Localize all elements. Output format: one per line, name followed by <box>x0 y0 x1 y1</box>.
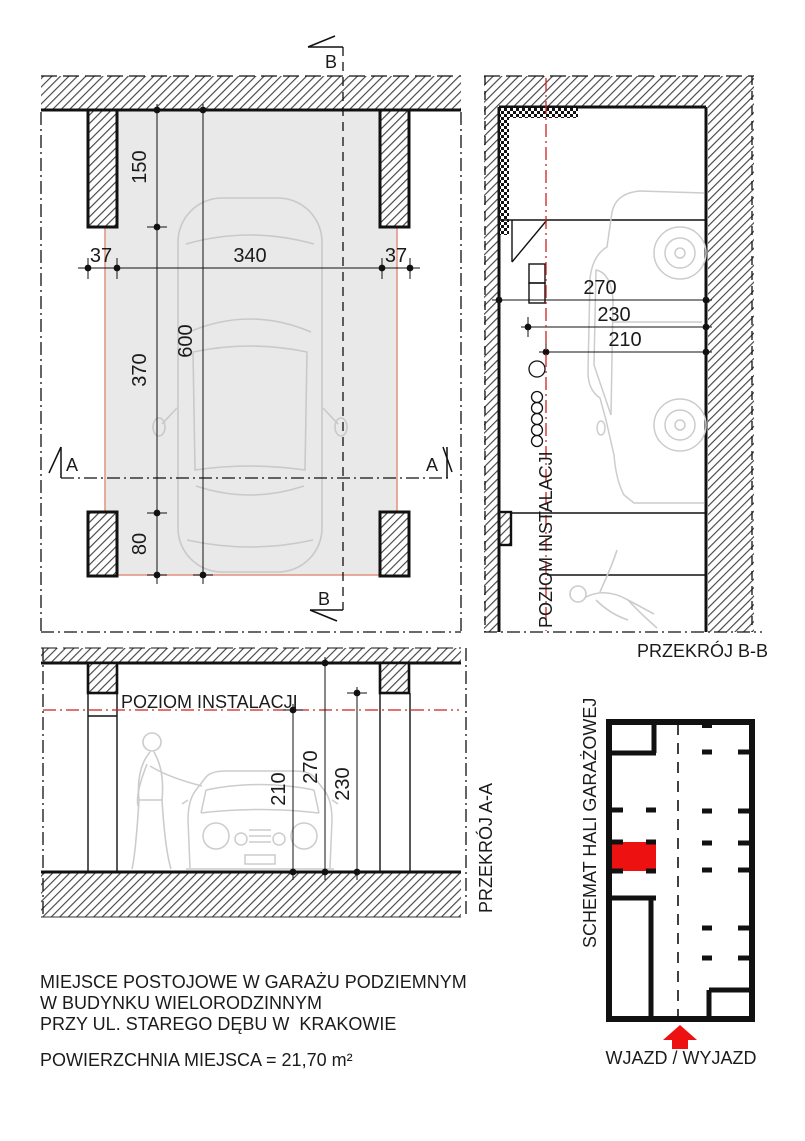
section-marker-b-bottom: B <box>318 589 330 609</box>
section-aa-view: POZIOM INSTALACJI 210 270 230 PRZEKRÓJ A… <box>41 648 496 917</box>
bb-wall-faces <box>499 107 706 632</box>
title-notes: MIEJSCE POSTOJOWE W GARAŻU PODZIEMNYM W … <box>40 972 467 1070</box>
note-line-3: PRZY UL. STAREGO DĘBU W KRAKOWIE <box>40 1014 396 1034</box>
section-marker-b-top: B <box>325 52 337 72</box>
architectural-drawing-sheet: B B A A <box>0 0 805 1141</box>
dim-600: 600 <box>175 324 197 357</box>
dim-80: 80 <box>129 533 151 555</box>
section-marker-a-left: A <box>66 455 78 475</box>
bb-pipes <box>529 361 545 447</box>
car-side-view <box>588 191 706 503</box>
plan-wall-band <box>41 76 461 110</box>
bb-insulation-top <box>500 108 578 118</box>
note-line-1: MIEJSCE POSTOJOWE W GARAŻU PODZIEMNYM <box>40 972 467 992</box>
section-marker-a-right: A <box>426 455 438 475</box>
bb-dim-210: 210 <box>608 329 641 351</box>
car-front-view <box>182 771 338 869</box>
bb-dim-270: 270 <box>583 277 616 299</box>
bb-right-wall <box>708 76 754 632</box>
entry-arrow <box>663 1025 697 1049</box>
section-bb-title: PRZEKRÓJ B-B <box>637 640 768 661</box>
bb-dim-230: 230 <box>597 304 630 326</box>
aa-beams <box>88 663 409 693</box>
dim-37-right: 37 <box>385 245 407 267</box>
aa-column-faces <box>88 693 410 872</box>
note-area: POWIERZCHNIA MIEJSCA = 21,70 m² <box>40 1050 353 1070</box>
aa-install-level-label: POZIOM INSTALACJI <box>121 692 298 712</box>
aa-floor-slab <box>41 872 461 917</box>
bb-install-level-label: POZIOM INSTALACJI <box>536 451 556 628</box>
aa-ceiling-slab <box>41 648 461 663</box>
bb-left-wall <box>484 76 499 632</box>
dim-150: 150 <box>129 150 151 183</box>
entry-exit-label: WJAZD / WYJAZD <box>606 1048 757 1068</box>
aa-dim-230: 230 <box>332 767 354 800</box>
bb-wall-pilaster <box>499 512 511 545</box>
aa-dim-210: 210 <box>268 772 290 805</box>
aa-dim-270: 270 <box>300 750 322 783</box>
garage-schematic: SCHEMAT HALI GARAŻOWEJ <box>580 698 757 1068</box>
drawing-canvas: B B A A <box>0 0 805 1141</box>
highlighted-parking-space <box>611 842 656 871</box>
person-figure-aa <box>132 733 202 869</box>
section-aa-title: PRZEKRÓJ A-A <box>475 783 496 913</box>
person-figure-bb <box>570 550 657 628</box>
section-bb-view: 270 230 210 POZIOM INSTALACJI PRZEKRÓJ B… <box>484 76 768 661</box>
dim-340: 340 <box>233 245 266 267</box>
note-line-2: W BUDYNKU WIELORODZINNYM <box>40 993 322 1013</box>
plan-view: B B A A <box>41 36 461 632</box>
dim-37-left: 37 <box>90 245 112 267</box>
schematic-title: SCHEMAT HALI GARAŻOWEJ <box>580 698 600 948</box>
bb-insulation-side <box>500 118 509 235</box>
dim-370: 370 <box>129 353 151 386</box>
